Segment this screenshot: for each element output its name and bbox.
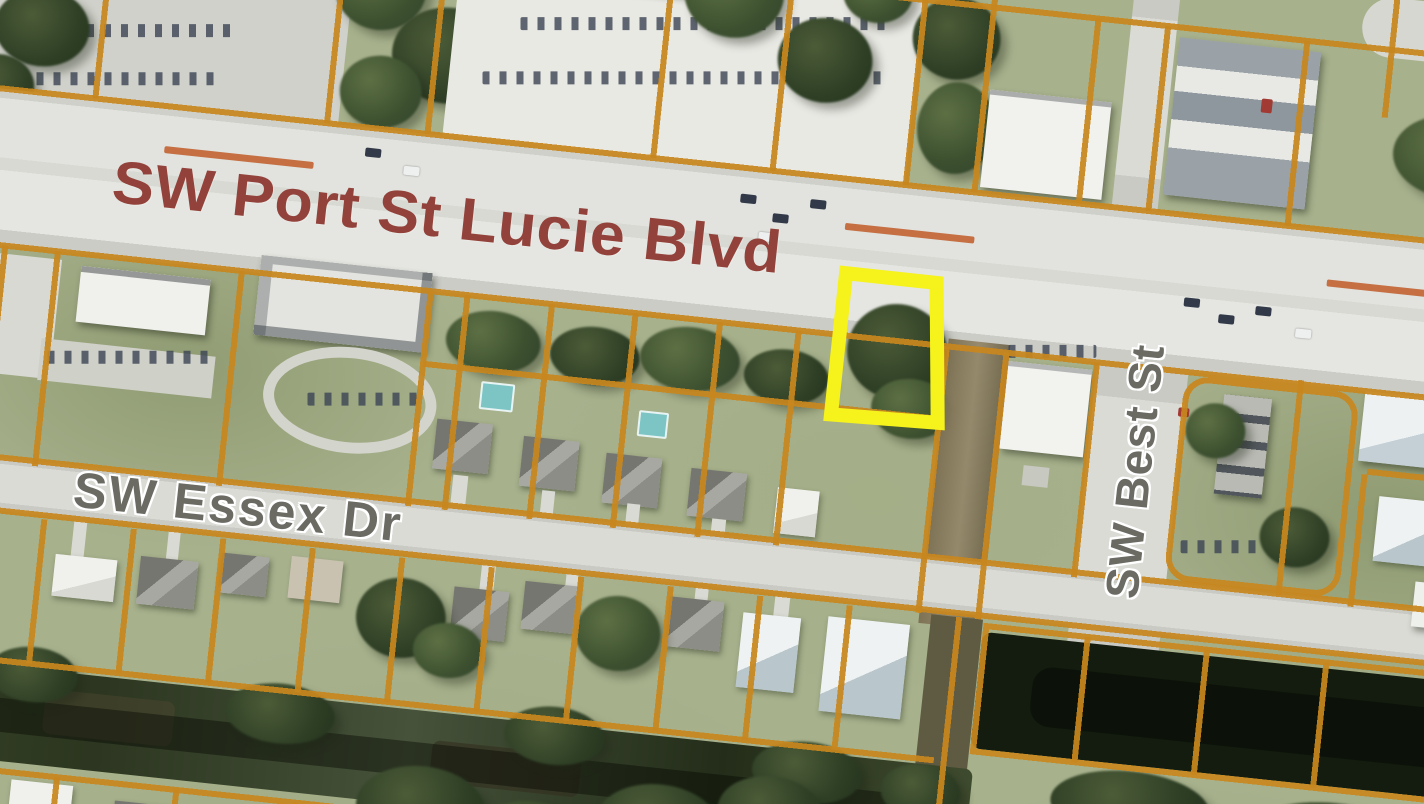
highlight-layer [0,0,1424,804]
highlighted-parcel[interactable] [831,273,952,426]
aerial-map-viewport[interactable]: SW Port St Lucie Blvd SW Essex Dr SW Bes… [0,0,1424,804]
map-rotated-layer: SW Port St Lucie Blvd SW Essex Dr SW Bes… [0,0,1424,804]
